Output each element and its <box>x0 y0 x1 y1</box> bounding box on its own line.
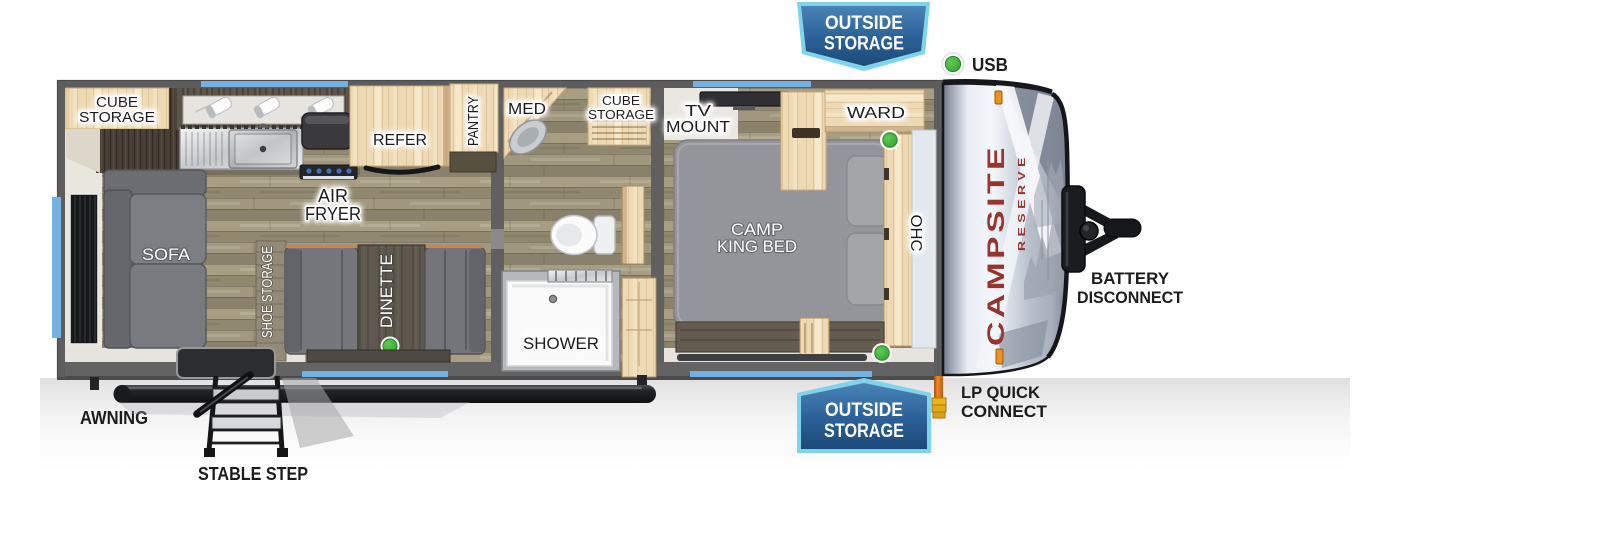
svg-text:WARD: WARD <box>847 105 905 122</box>
svg-text:STORAGE: STORAGE <box>824 420 904 442</box>
svg-text:STABLE STEP: STABLE STEP <box>198 463 308 484</box>
svg-text:STORAGE: STORAGE <box>79 110 155 126</box>
svg-text:STORAGE: STORAGE <box>824 33 904 55</box>
svg-text:DISCONNECT: DISCONNECT <box>1077 289 1183 307</box>
svg-text:SOFA: SOFA <box>142 245 191 264</box>
svg-text:USB: USB <box>972 55 1008 75</box>
svg-text:PANTRY: PANTRY <box>465 96 482 146</box>
svg-text:KING BED: KING BED <box>717 238 797 256</box>
svg-text:MOUNT: MOUNT <box>666 119 730 136</box>
svg-text:SHOE STORAGE: SHOE STORAGE <box>260 246 276 338</box>
svg-text:CUBE: CUBE <box>602 93 640 108</box>
svg-text:OUTSIDE: OUTSIDE <box>825 12 903 34</box>
svg-text:BATTERY: BATTERY <box>1091 270 1169 288</box>
svg-text:CUBE: CUBE <box>96 95 138 111</box>
svg-text:FRYER: FRYER <box>305 204 361 224</box>
svg-text:SHOWER: SHOWER <box>523 335 599 353</box>
svg-text:STORAGE: STORAGE <box>588 107 654 122</box>
svg-text:MED: MED <box>508 101 546 118</box>
svg-text:OHC: OHC <box>907 215 924 252</box>
svg-text:REFER: REFER <box>373 132 427 149</box>
svg-text:TV: TV <box>685 103 711 120</box>
svg-text:DINETTE: DINETTE <box>378 254 396 328</box>
svg-text:LP QUICK: LP QUICK <box>961 383 1041 402</box>
svg-text:CAMP: CAMP <box>731 221 783 239</box>
svg-text:CONNECT: CONNECT <box>961 402 1048 421</box>
svg-text:OUTSIDE: OUTSIDE <box>825 399 903 421</box>
svg-text:CAMPSITE: CAMPSITE <box>983 144 1010 346</box>
svg-text:AIR: AIR <box>318 186 348 206</box>
svg-text:RESERVE: RESERVE <box>1016 153 1028 251</box>
